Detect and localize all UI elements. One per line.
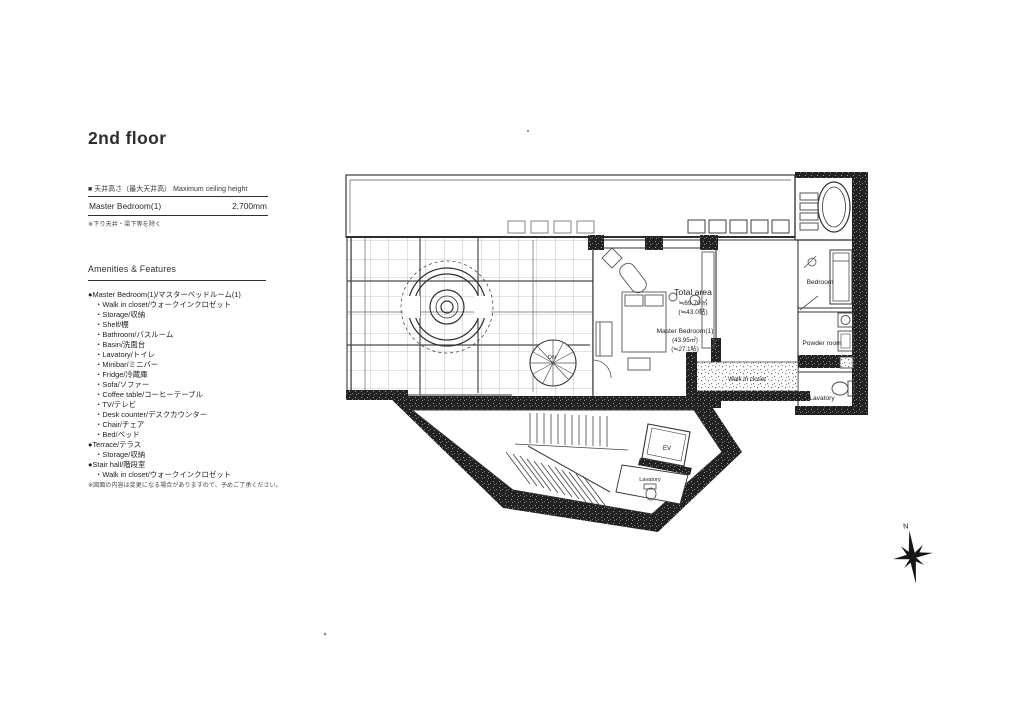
room-area-sqm: (43.95㎡) <box>672 336 698 344</box>
toilet-icon <box>832 381 854 396</box>
area-annotation: Total area ≒69.70㎡ (≒43.0帖) Master Bedro… <box>657 287 714 353</box>
room-area-title: Master Bedroom(1) <box>657 328 714 335</box>
spiral-stair-icon: DN <box>530 340 576 386</box>
stair-hall-area: EV Lavatory <box>346 390 742 532</box>
lavatory-label: Lavatory <box>639 477 661 483</box>
stair-down-label: DN <box>548 355 556 361</box>
floor-plan-drawing: DN Total area ≒69.70㎡ (≒43.0帖) <box>0 0 1024 722</box>
sofa-icon <box>596 322 612 356</box>
compass-icon: N <box>889 519 935 586</box>
total-area-jo: (≒43.0帖) <box>678 307 707 316</box>
room-area-jo: (≒27.1帖) <box>671 345 699 353</box>
top-strip <box>346 175 795 237</box>
powder-room-label: Powder room <box>802 340 842 347</box>
walk-in-closet-label: Walk in closet <box>728 376 766 383</box>
bathtub-icon <box>818 182 850 232</box>
bed-icon <box>830 250 852 304</box>
scanned-floorplan-page: { "page": { "title": "2nd floor" }, "cei… <box>0 0 1024 722</box>
total-area-title: Total area <box>674 287 712 297</box>
total-area-sqm: ≒69.70㎡ <box>679 298 708 307</box>
chaise-icon <box>617 260 649 295</box>
shelf-icon <box>800 193 818 230</box>
lavatory-label: Lavatory <box>809 395 835 402</box>
walk-in-closet-area: Walk in closet <box>686 352 810 401</box>
scan-speck <box>527 130 529 132</box>
scan-speck <box>324 633 327 636</box>
elevator-label: EV <box>663 445 672 452</box>
door-knob-icon <box>808 258 816 266</box>
bedroom-label: Bedroom <box>807 279 834 286</box>
chair-icon <box>602 248 622 268</box>
coffee-table-icon <box>628 358 650 370</box>
compass-north-label: N <box>903 521 909 531</box>
exterior-wall <box>852 172 868 412</box>
bed-icon <box>622 292 666 352</box>
